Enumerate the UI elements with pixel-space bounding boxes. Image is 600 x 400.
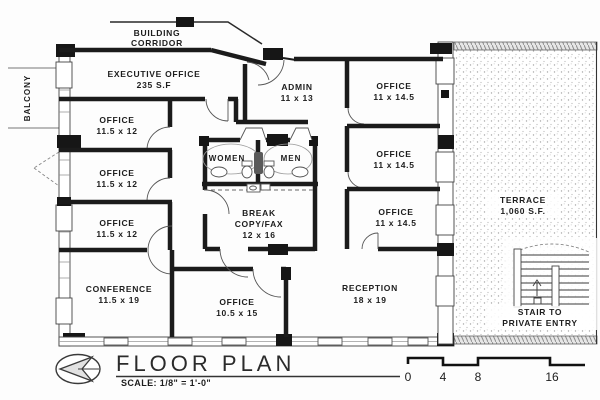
terrace-label: TERRACE <box>500 195 546 205</box>
drinking-fountain-2 <box>261 184 270 190</box>
men-toilet-bowl <box>264 166 274 178</box>
left-wall-column <box>56 298 72 324</box>
room-label-office-l2: OFFICE <box>99 168 134 178</box>
room-dims-office-r3: 11 x 14.5 <box>375 218 416 228</box>
scale-tick-4: 4 <box>440 370 447 384</box>
top-wall-angled <box>211 50 266 64</box>
stair-label-line1: STAIR TO <box>518 307 562 317</box>
room-label-conference: CONFERENCE <box>86 284 153 294</box>
room-label-break: BREAK <box>242 208 276 218</box>
scale-bar-line <box>408 358 585 365</box>
balcony-door-dash2 <box>34 168 59 186</box>
room-label-admin: ADMIN <box>281 82 312 92</box>
floor-plan-page: TERRACE 1,060 S.F. STAIR TO PRIVATE ENTR… <box>0 0 600 400</box>
women-entry-door <box>240 128 266 140</box>
room-dims-admin: 11 x 13 <box>281 93 314 103</box>
office-l2-door-arc <box>147 178 170 201</box>
conference-door-arc-down <box>148 250 172 274</box>
room-dims-office-r2: 11 x 14.5 <box>373 160 414 170</box>
scale-bar: 0 4 8 16 <box>405 358 585 384</box>
balcony: BALCONY <box>8 68 59 186</box>
office-l1-door-arc <box>147 127 170 150</box>
office-c-door-arc <box>253 269 281 297</box>
corridor-label-line2: CORRIDOR <box>131 38 183 48</box>
room-dims-office-l3: 11.5 x 12 <box>96 229 137 239</box>
corridor-column <box>176 17 194 27</box>
room-dims-office-r1: 11 x 14.5 <box>373 92 414 102</box>
room-label-reception: RECEPTION <box>342 283 398 293</box>
left-wall-column <box>56 205 72 231</box>
men-entry-door <box>290 128 312 140</box>
stair-label-line2: PRIVATE ENTRY <box>502 318 578 328</box>
scale-tick-0: 0 <box>405 370 412 384</box>
right-wall-column <box>436 152 454 182</box>
stair-stringer-left <box>514 249 521 307</box>
title-block: FLOOR PLAN SCALE: 1/8" = 1'-0" <box>56 351 400 388</box>
scale-tick-8: 8 <box>475 370 482 384</box>
balcony-label: BALCONY <box>23 75 32 122</box>
building-corridor: BUILDING CORRIDOR <box>110 17 262 48</box>
room-label-men: MEN <box>281 154 302 163</box>
office-r2-door-arc <box>348 172 364 188</box>
terrace-south-rail <box>454 336 597 344</box>
room-label-office-r3: OFFICE <box>378 207 413 217</box>
room-labels: EXECUTIVE OFFICE 235 S.F ADMIN 11 x 13 O… <box>86 69 417 318</box>
scale-note: SCALE: 1/8" = 1'-0" <box>121 378 211 388</box>
room-dims-office-l2: 11.5 x 12 <box>96 179 137 189</box>
left-wall-column <box>56 62 72 88</box>
corridor-label-line1: BUILDING <box>134 28 181 38</box>
right-wall-tick <box>441 90 449 98</box>
office-r3-door-arc <box>362 233 378 249</box>
drawing-title: FLOOR PLAN <box>116 351 295 376</box>
women-toilet-bowl <box>242 166 252 178</box>
right-wall-column <box>436 276 454 306</box>
room-dims-office-c: 10.5 x 15 <box>216 308 258 318</box>
stair-stringer-mid <box>552 266 559 307</box>
fountain-basin <box>250 186 257 190</box>
entry-door-block <box>263 48 283 60</box>
office-r1-door-arc <box>348 108 364 124</box>
terrace-north-rail <box>454 42 597 50</box>
plumbing-chase <box>254 152 263 174</box>
room-label-office-l1: OFFICE <box>99 115 134 125</box>
office-c-block <box>281 267 291 280</box>
break-south-door-arc <box>220 249 248 277</box>
room-label-office-r1: OFFICE <box>376 81 411 91</box>
room-label-office-r2: OFFICE <box>376 149 411 159</box>
room-label-break-2: COPY/FAX <box>235 219 284 229</box>
room-label-executive-office: EXECUTIVE OFFICE <box>108 69 201 79</box>
room-label-women: WOMEN <box>209 154 246 163</box>
left-wall-block <box>57 135 81 148</box>
room-dims-executive-office: 235 S.F <box>137 80 172 90</box>
men-sink <box>292 167 308 177</box>
right-wall-column <box>436 58 454 84</box>
terrace-area-label: 1,060 S.F. <box>500 206 545 216</box>
room-dims-conference: 11.5 x 19 <box>98 295 139 305</box>
balcony-door-dash1 <box>34 152 59 168</box>
men-toilet-tank <box>264 161 274 166</box>
scale-tick-16: 16 <box>545 370 559 384</box>
room-label-office-l3: OFFICE <box>99 218 134 228</box>
break-door-arc <box>205 190 229 214</box>
room-dims-break: 12 x 16 <box>242 230 275 240</box>
room-dims-reception: 18 x 19 <box>353 295 386 305</box>
restroom-end-block-w <box>199 136 209 146</box>
right-wall-block-top <box>430 43 452 54</box>
right-wall-block <box>438 135 454 149</box>
floor-plan-drawing: TERRACE 1,060 S.F. STAIR TO PRIVATE ENTR… <box>0 0 600 400</box>
exec-door-arc <box>206 99 228 121</box>
room-dims-office-l1: 11.5 x 12 <box>96 126 137 136</box>
women-sink <box>211 167 227 177</box>
room-label-office-c: OFFICE <box>219 297 254 307</box>
break-wall-block <box>268 244 288 255</box>
right-wall-column <box>436 205 454 235</box>
